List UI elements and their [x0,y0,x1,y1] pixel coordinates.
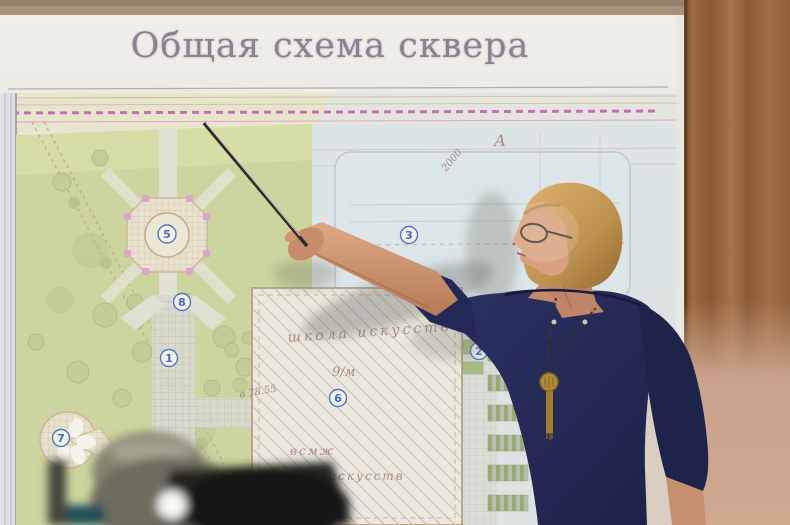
marker-1: 1 [161,350,178,367]
presentation-photo: Общая схема сквера [0,0,790,525]
svg-text:3: 3 [405,229,413,242]
svg-text:7: 7 [57,432,65,445]
label-9m: 9/м [332,365,355,380]
scene-art: школа искусств 9/м всмж школа искусств в… [0,0,790,525]
marker-7: 7 [53,430,70,447]
marker-8: 8 [174,294,191,311]
marker-3: 3 [401,227,418,244]
marker-6: 6 [330,390,347,407]
svg-text:8: 8 [178,296,186,309]
svg-text:6: 6 [334,392,342,405]
label-vsmzh: всмж [290,444,335,458]
label-section-a: А [493,131,506,150]
svg-text:5: 5 [163,228,171,241]
svg-text:1: 1 [165,352,173,365]
marker-5: 5 [158,225,176,243]
